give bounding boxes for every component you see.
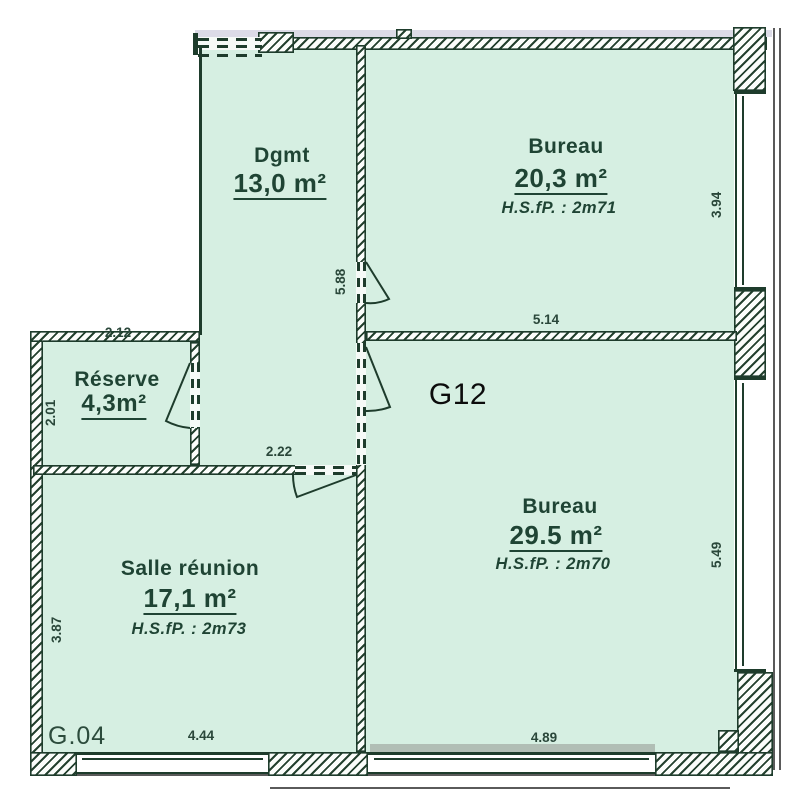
dim-salle-width: 4.44 — [188, 728, 214, 743]
room-area-reserve: 4,3m² — [81, 392, 146, 420]
facade-bottom-outer-line — [270, 787, 730, 789]
room-area-bureau-bottom: 29.5 m² — [509, 522, 602, 552]
facade-outer-line-1 — [773, 28, 775, 770]
zone-label-g04: G.04 — [48, 722, 106, 751]
facade-outer-line-2 — [779, 28, 781, 770]
wall-dgmt-left — [199, 45, 202, 335]
window-bottom-right-sill — [370, 744, 655, 752]
door-opening-salle-dash-1 — [295, 466, 356, 469]
door-opening-bureau-top-dash-2 — [363, 262, 366, 303]
top-opening-dash-3 — [198, 54, 262, 57]
room-area-bureau-top: 20,3 m² — [514, 165, 607, 195]
room-ceiling-salle: H.S.fP. : 2m73 — [132, 621, 247, 638]
partition-dashed-central-dash-2 — [363, 343, 366, 465]
window-right-upper — [734, 91, 766, 290]
room-area-salle: 17,1 m² — [143, 585, 236, 615]
wall-corner-bottom-left — [30, 752, 77, 776]
room-name-salle: Salle réunion — [121, 558, 259, 579]
window-right-lower — [734, 377, 766, 672]
window-right-lower-cap-top — [734, 377, 766, 380]
wall-top-exterior — [262, 37, 767, 50]
window-bottom-left-glazing — [82, 758, 263, 760]
door-opening-reserve-dash-2 — [197, 363, 200, 428]
room-ceiling-bureau-bottom: H.S.fP. : 2m70 — [496, 556, 611, 573]
door-opening-reserve-dash-1 — [191, 363, 194, 428]
window-right-upper-cap-top — [734, 91, 766, 94]
wall-corner-bottom-right-step — [718, 730, 739, 752]
room-ceiling-bureau-top: H.S.fP. : 2m71 — [502, 200, 617, 217]
window-right-lower-frame-inner — [735, 377, 737, 672]
dim-salle-height: 3.87 — [49, 585, 64, 643]
window-right-upper-glazing — [742, 96, 744, 285]
window-right-lower-glazing — [742, 383, 744, 666]
room-name-reserve: Réserve — [74, 369, 159, 390]
window-right-upper-frame-inner — [735, 91, 737, 290]
wall-top-pier — [258, 32, 294, 53]
dim-bureau-top-width: 5.14 — [533, 312, 559, 327]
top-opening-dash-1 — [198, 38, 262, 41]
wall-right-pier — [734, 290, 766, 377]
room-name-bureau-top: Bureau — [528, 136, 603, 157]
partition-dashed-central-dash-1 — [357, 343, 360, 465]
wall-top-notch — [396, 29, 412, 39]
dim-bureau-bottom-height: 5.49 — [709, 510, 724, 568]
window-bottom-left — [77, 752, 268, 774]
room-name-dgmt: Dgmt — [254, 145, 310, 166]
dim-corridor-width: 2.22 — [266, 444, 292, 459]
wall-corner-top-right — [733, 27, 766, 91]
top-opening-dash-2 — [198, 45, 262, 48]
window-bottom-right-glazing — [374, 758, 649, 760]
room-area-dgmt: 13,0 m² — [233, 170, 326, 200]
floor-plan: Dgmt 13,0 m² Bureau 20,3 m² H.S.fP. : 2m… — [0, 0, 805, 800]
dim-bureau-top-height: 3.94 — [709, 160, 724, 218]
door-opening-salle-dash-2 — [295, 472, 356, 475]
dim-dgmt-height: 5.88 — [333, 233, 348, 295]
dim-reserve-height: 2.01 — [43, 368, 58, 426]
unit-label-g12: G12 — [429, 380, 487, 410]
dim-bureau-bottom-width: 4.89 — [531, 730, 557, 745]
wall-bureaus-divider — [366, 331, 737, 341]
wall-bottom-pier — [268, 752, 368, 776]
window-bottom-right — [368, 752, 655, 774]
door-opening-bureau-top-dash-1 — [357, 262, 360, 303]
dim-reserve-width: 2.12 — [105, 325, 131, 340]
wall-left-exterior — [30, 331, 43, 776]
room-name-bureau-bottom: Bureau — [522, 496, 597, 517]
wall-bottom-right-mass — [655, 752, 773, 776]
